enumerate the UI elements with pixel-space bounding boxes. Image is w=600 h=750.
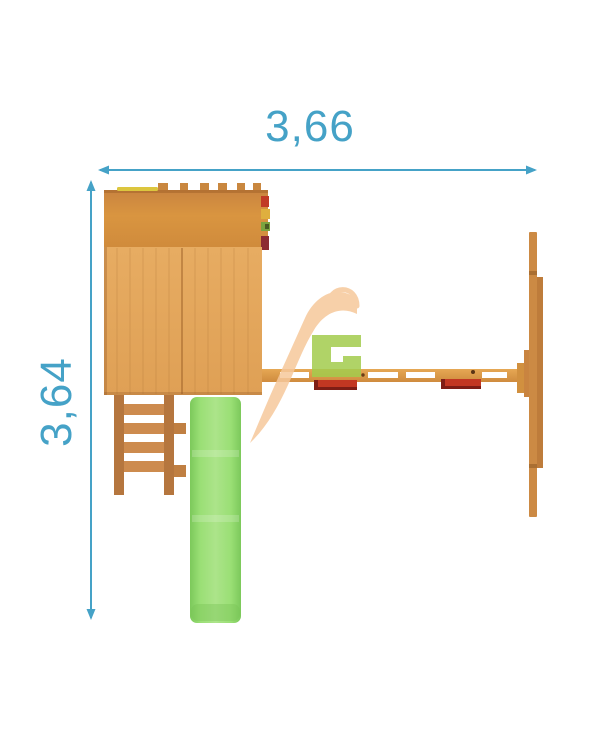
slide-end — [191, 604, 240, 621]
swing-seat-2 — [441, 379, 481, 389]
platform-roof — [104, 183, 270, 250]
logo-g-letter — [312, 335, 361, 377]
swing-beam — [262, 369, 530, 390]
ladder-bracket — [174, 465, 186, 477]
arrow-up-icon — [87, 180, 96, 191]
a-frame-support — [517, 232, 543, 517]
support-bar-secondary — [537, 277, 543, 468]
ladder-rail-left — [114, 395, 124, 495]
arrow-down-icon — [87, 609, 96, 620]
swing-seat-1 — [314, 380, 357, 390]
slide — [190, 397, 241, 623]
playset-top-view-diagram: 3,66 3,64 — [0, 0, 600, 750]
arrow-left-icon — [98, 166, 109, 175]
roof-trim — [117, 187, 158, 191]
ladder-rail-right — [164, 395, 174, 495]
height-dimension-label: 3,64 — [34, 335, 80, 469]
width-dimension-label: 3,66 — [255, 104, 365, 150]
platform-floor — [104, 247, 262, 395]
ladder-rungs — [124, 404, 164, 472]
arrow-right-icon — [526, 166, 537, 175]
ladder-bracket — [174, 423, 186, 434]
brand-watermark-logo — [250, 290, 361, 443]
access-ladder — [114, 395, 186, 495]
platform-accessories — [261, 196, 270, 250]
